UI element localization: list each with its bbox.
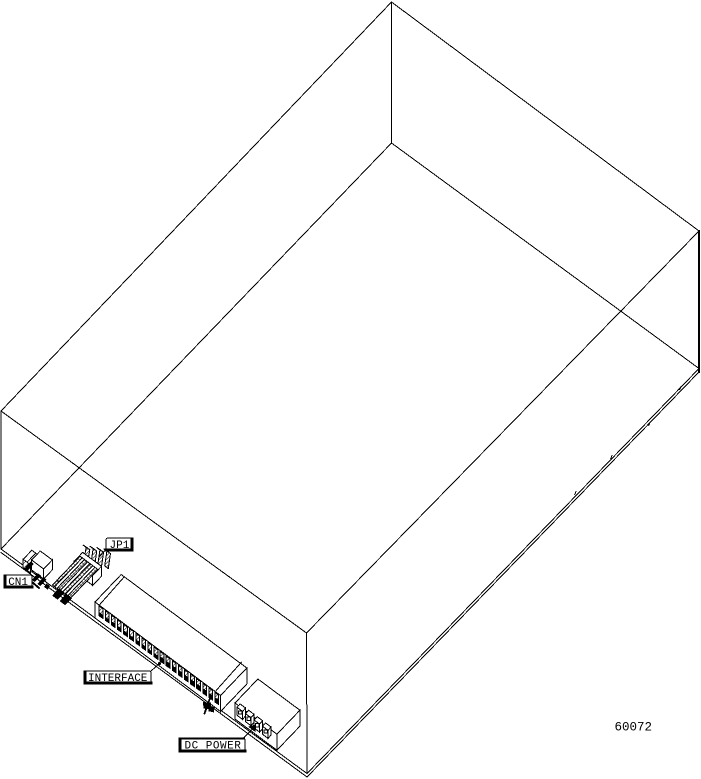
svg-text:JP1: JP1 xyxy=(110,540,130,552)
svg-text:INTERFACE: INTERFACE xyxy=(88,673,148,685)
svg-text:CN1: CN1 xyxy=(8,577,28,589)
svg-text:DC POWER: DC POWER xyxy=(185,740,242,752)
svg-text:60072: 60072 xyxy=(615,721,653,735)
